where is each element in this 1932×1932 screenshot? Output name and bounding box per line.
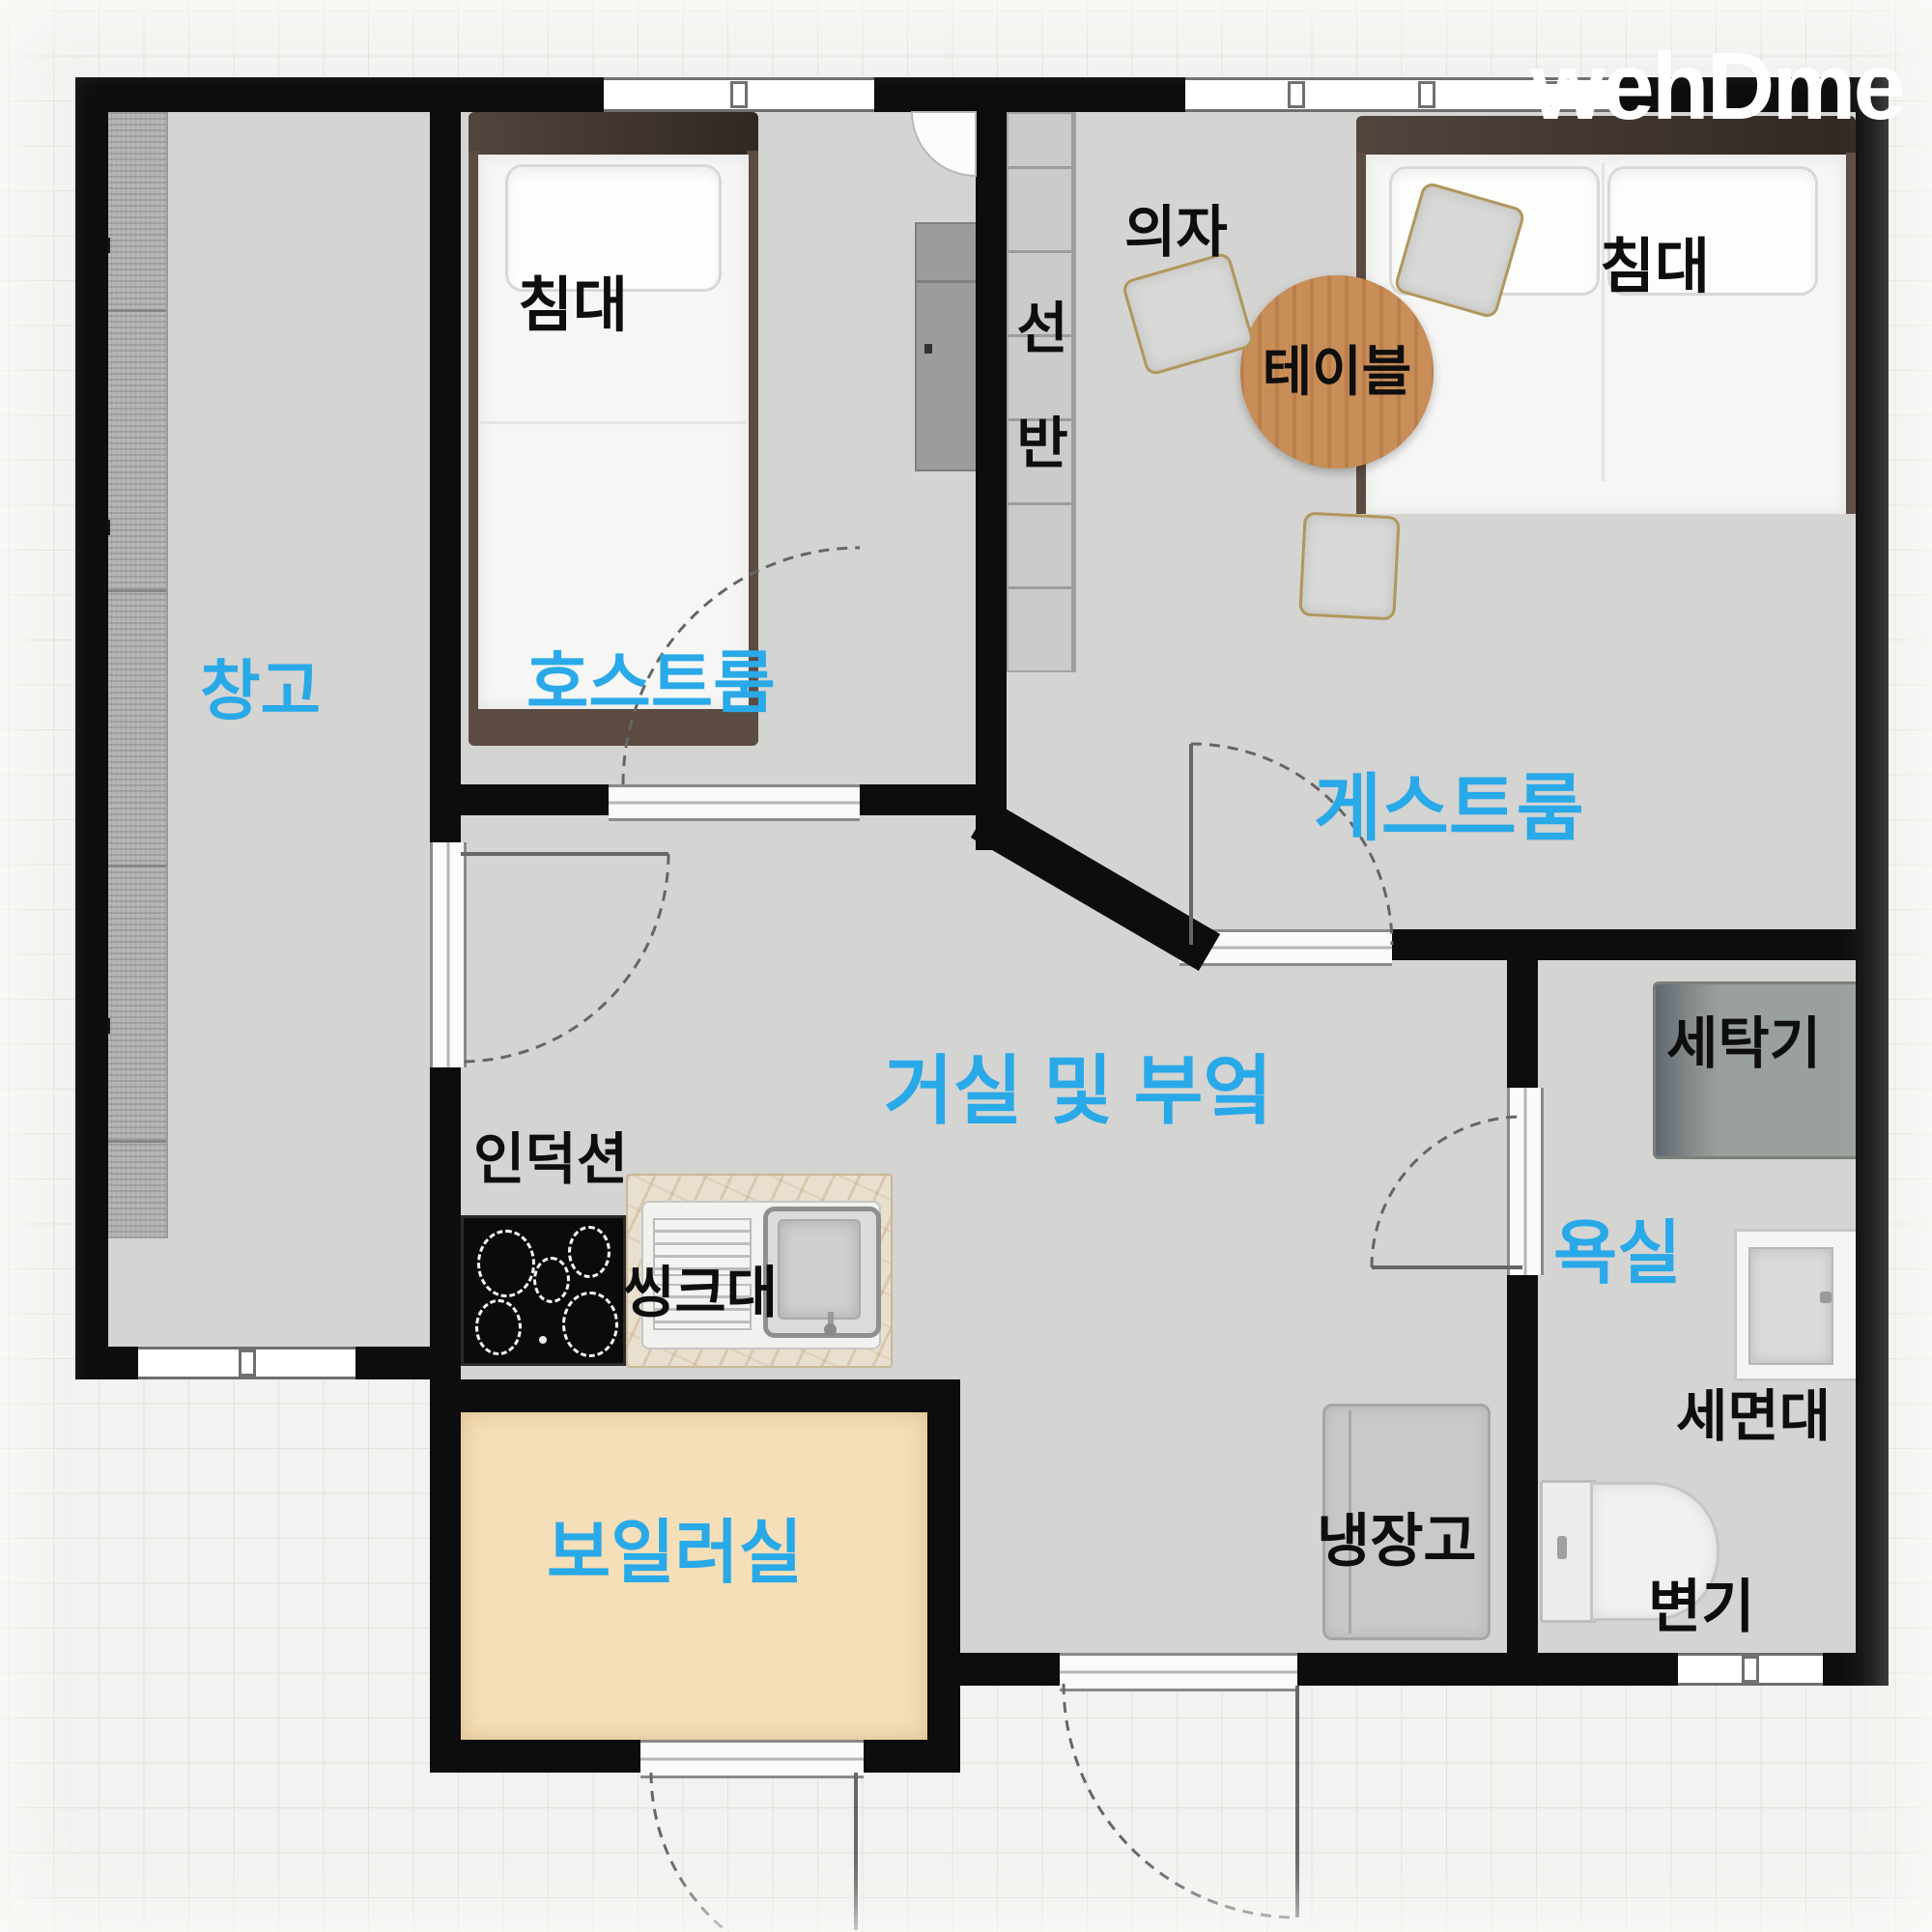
burner bbox=[533, 1257, 570, 1303]
guest-bed bbox=[1356, 116, 1856, 514]
burner-dot bbox=[539, 1336, 547, 1344]
wall-storage-right-upper bbox=[430, 77, 461, 842]
wall-host-guest bbox=[976, 77, 1007, 850]
wall-guest-bottom bbox=[1392, 929, 1856, 960]
window-bathroom bbox=[1678, 1653, 1823, 1686]
label-room-host: 호스트룸 bbox=[526, 649, 776, 717]
bed-headboard bbox=[469, 112, 758, 156]
wall-boiler-left bbox=[430, 1379, 461, 1773]
shelf-divider bbox=[106, 309, 166, 312]
wall-east bbox=[1856, 77, 1889, 1686]
wall-host-bottom-left bbox=[461, 784, 609, 815]
shelf-divider bbox=[106, 865, 166, 867]
label-room-boiler: 보일러실 bbox=[547, 1519, 803, 1588]
chair-bottom bbox=[1298, 511, 1401, 620]
floor-plan-canvas: 테이블 bbox=[0, 0, 1932, 1932]
cabinet-divider bbox=[917, 280, 978, 283]
label-induction: 인덕션 bbox=[473, 1132, 628, 1188]
window-mullion bbox=[1418, 81, 1435, 108]
wall-storage-right-lower bbox=[430, 1067, 461, 1379]
label-room-bathroom: 욕실 bbox=[1553, 1219, 1681, 1289]
door-swing-boiler bbox=[651, 1773, 856, 1932]
bed-rail-right bbox=[1846, 153, 1856, 514]
wall-living-bottom-right bbox=[1823, 1653, 1889, 1686]
label-room-storage: 창고 bbox=[200, 659, 321, 724]
duvet-seam bbox=[480, 421, 747, 424]
door-guest-room bbox=[1179, 929, 1392, 966]
burner bbox=[475, 1299, 522, 1355]
table-label: 테이블 bbox=[1263, 345, 1412, 399]
label-room-guest: 게스트룸 bbox=[1314, 773, 1584, 846]
label-basin: 세면대 bbox=[1676, 1389, 1831, 1445]
basin-bowl bbox=[1748, 1247, 1833, 1365]
wall-boiler-bottom-right bbox=[864, 1740, 960, 1773]
wall-bath-left-upper bbox=[1507, 929, 1538, 1088]
label-bed-host: 침대 bbox=[518, 276, 628, 336]
door-boiler bbox=[640, 1740, 864, 1778]
label-toilet: 변기 bbox=[1648, 1578, 1754, 1636]
door-storage bbox=[430, 842, 467, 1067]
window-mullion bbox=[1742, 1656, 1759, 1683]
wall-living-bottom-mid bbox=[1297, 1653, 1678, 1686]
burner bbox=[477, 1230, 535, 1297]
faucet bbox=[824, 1323, 837, 1336]
burner bbox=[568, 1226, 611, 1278]
label-fridge: 냉장고 bbox=[1317, 1513, 1477, 1571]
label-chair: 의자 bbox=[1124, 205, 1228, 261]
label-room-living-kitchen: 거실 및 부엌 bbox=[884, 1053, 1272, 1128]
shelf-divider bbox=[106, 589, 166, 592]
cabinet-handle bbox=[924, 344, 932, 354]
door-swing-entrance bbox=[1064, 1684, 1297, 1918]
door-bathroom bbox=[1507, 1088, 1544, 1275]
burner bbox=[562, 1292, 618, 1357]
shelf-divider bbox=[106, 1140, 166, 1143]
label-shelf: 선반 bbox=[1010, 272, 1074, 502]
window-top-host bbox=[604, 77, 874, 112]
bed-center-crease bbox=[1602, 162, 1605, 481]
sink-basin bbox=[778, 1219, 861, 1320]
label-washer: 세탁기 bbox=[1666, 1016, 1821, 1072]
storage-shelving bbox=[106, 110, 168, 1238]
host-cabinet bbox=[915, 222, 980, 471]
logo-wehdme: wehDme bbox=[1531, 39, 1903, 133]
window-storage bbox=[138, 1347, 355, 1379]
wall-boiler-bottom-left bbox=[430, 1740, 640, 1773]
wash-basin bbox=[1734, 1229, 1861, 1381]
kitchen-sink bbox=[763, 1207, 881, 1338]
wall-left bbox=[75, 77, 108, 1379]
window-mullion bbox=[730, 81, 748, 108]
basin-faucet bbox=[1820, 1292, 1832, 1303]
wall-boiler-right bbox=[927, 1379, 960, 1773]
wall-boiler-top bbox=[461, 1379, 960, 1412]
label-bed-guest: 침대 bbox=[1600, 238, 1710, 298]
window-mullion bbox=[239, 1350, 256, 1377]
induction-cooktop bbox=[461, 1215, 626, 1366]
toilet-tank bbox=[1540, 1480, 1598, 1623]
round-table: 테이블 bbox=[1240, 275, 1434, 469]
toilet-button bbox=[1557, 1536, 1567, 1559]
wall-bath-left-lower bbox=[1507, 1275, 1538, 1653]
label-sink: 씽크대 bbox=[623, 1265, 778, 1321]
window-mullion bbox=[1288, 81, 1305, 108]
door-entrance bbox=[1060, 1653, 1297, 1691]
door-host-room bbox=[609, 784, 860, 821]
